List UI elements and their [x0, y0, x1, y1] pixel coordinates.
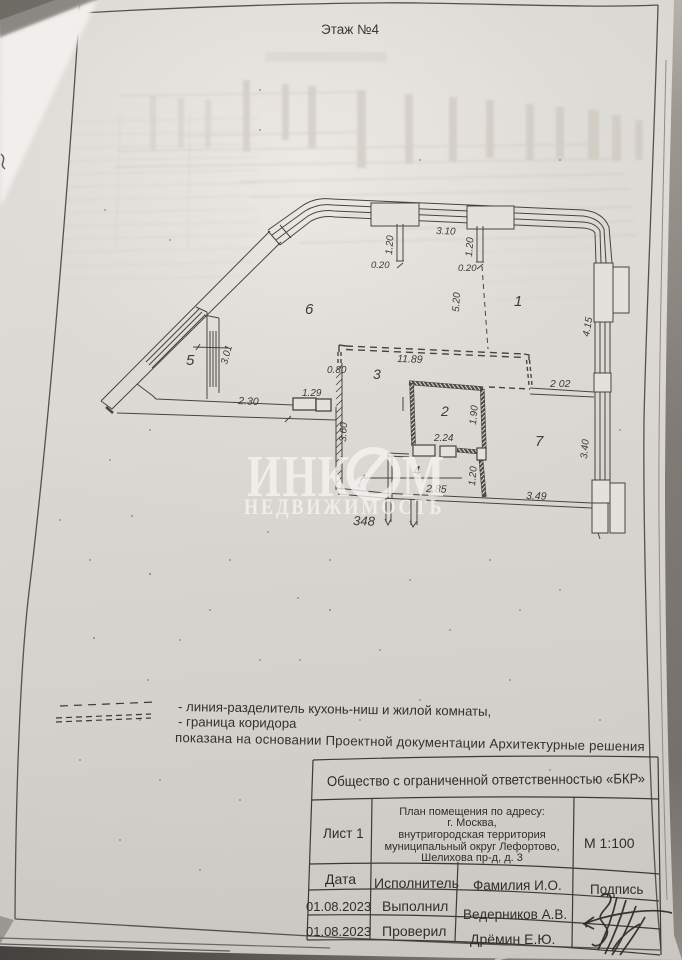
svg-text:1.29: 1.29	[302, 388, 322, 399]
svg-text:1.90: 1.90	[468, 404, 481, 425]
svg-text:0.80: 0.80	[327, 365, 347, 376]
svg-text:2.30: 2.30	[237, 395, 259, 408]
svg-text:1: 1	[514, 293, 522, 310]
svg-text:3: 3	[373, 366, 381, 382]
svg-text:Лист 1: Лист 1	[323, 826, 364, 841]
svg-text:Исполнитель: Исполнитель	[374, 875, 459, 891]
svg-text:11.89: 11.89	[397, 353, 423, 366]
svg-text:1.20: 1.20	[464, 237, 476, 258]
svg-text:Дрёмин Е.Ю.: Дрёмин Е.Ю.	[470, 931, 555, 947]
svg-text:6: 6	[305, 301, 314, 318]
svg-text:- граница коридора: - граница коридора	[178, 714, 297, 731]
svg-text:0.20: 0.20	[371, 260, 390, 271]
svg-text:2 02: 2 02	[549, 378, 571, 390]
svg-text:Выполнил: Выполнил	[382, 898, 448, 914]
svg-text:3.49: 3.49	[526, 490, 547, 503]
svg-text:5.20: 5.20	[451, 292, 463, 312]
svg-text:Этаж №4: Этаж №4	[321, 22, 380, 37]
svg-text:показана на основании Проектно: показана на основании Проектной документ…	[175, 730, 645, 754]
svg-text:Проверил: Проверил	[382, 923, 446, 939]
svg-text:Шелихова пр-д, д. 3: Шелихова пр-д, д. 3	[421, 852, 523, 864]
svg-text:Общество с ограниченной ответс: Общество с ограниченной ответственностью…	[327, 770, 645, 789]
svg-text:НЕДВИЖИМОСТЬ: НЕДВИЖИМОСТЬ	[244, 495, 444, 519]
svg-text:0.20: 0.20	[458, 263, 477, 274]
svg-text:Фамилия И.О.: Фамилия И.О.	[473, 878, 562, 893]
svg-text:1.20: 1.20	[384, 235, 396, 256]
svg-text:3.10: 3.10	[436, 226, 456, 238]
svg-text:01.08.2023: 01.08.2023	[306, 899, 371, 914]
svg-text:М 1:100: М 1:100	[584, 835, 635, 851]
svg-text:5: 5	[186, 352, 195, 369]
svg-text:2: 2	[440, 403, 449, 419]
svg-text:Ведерников А.В.: Ведерников А.В.	[463, 907, 567, 922]
svg-text:Подпись: Подпись	[590, 882, 643, 897]
svg-text:2.24: 2.24	[433, 433, 454, 444]
svg-text:внутригородская территория: внутригородская территория	[398, 829, 545, 841]
svg-text:3.40: 3.40	[579, 438, 592, 459]
svg-text:01.08.2023: 01.08.2023	[306, 924, 371, 939]
svg-text:1.20: 1.20	[467, 465, 480, 486]
svg-text:7: 7	[535, 433, 544, 450]
svg-text:г. Москва,: г. Москва,	[447, 817, 496, 829]
svg-text:Дата: Дата	[325, 871, 356, 887]
svg-text:4.15: 4.15	[581, 316, 595, 338]
svg-text:3.60: 3.60	[338, 422, 350, 442]
